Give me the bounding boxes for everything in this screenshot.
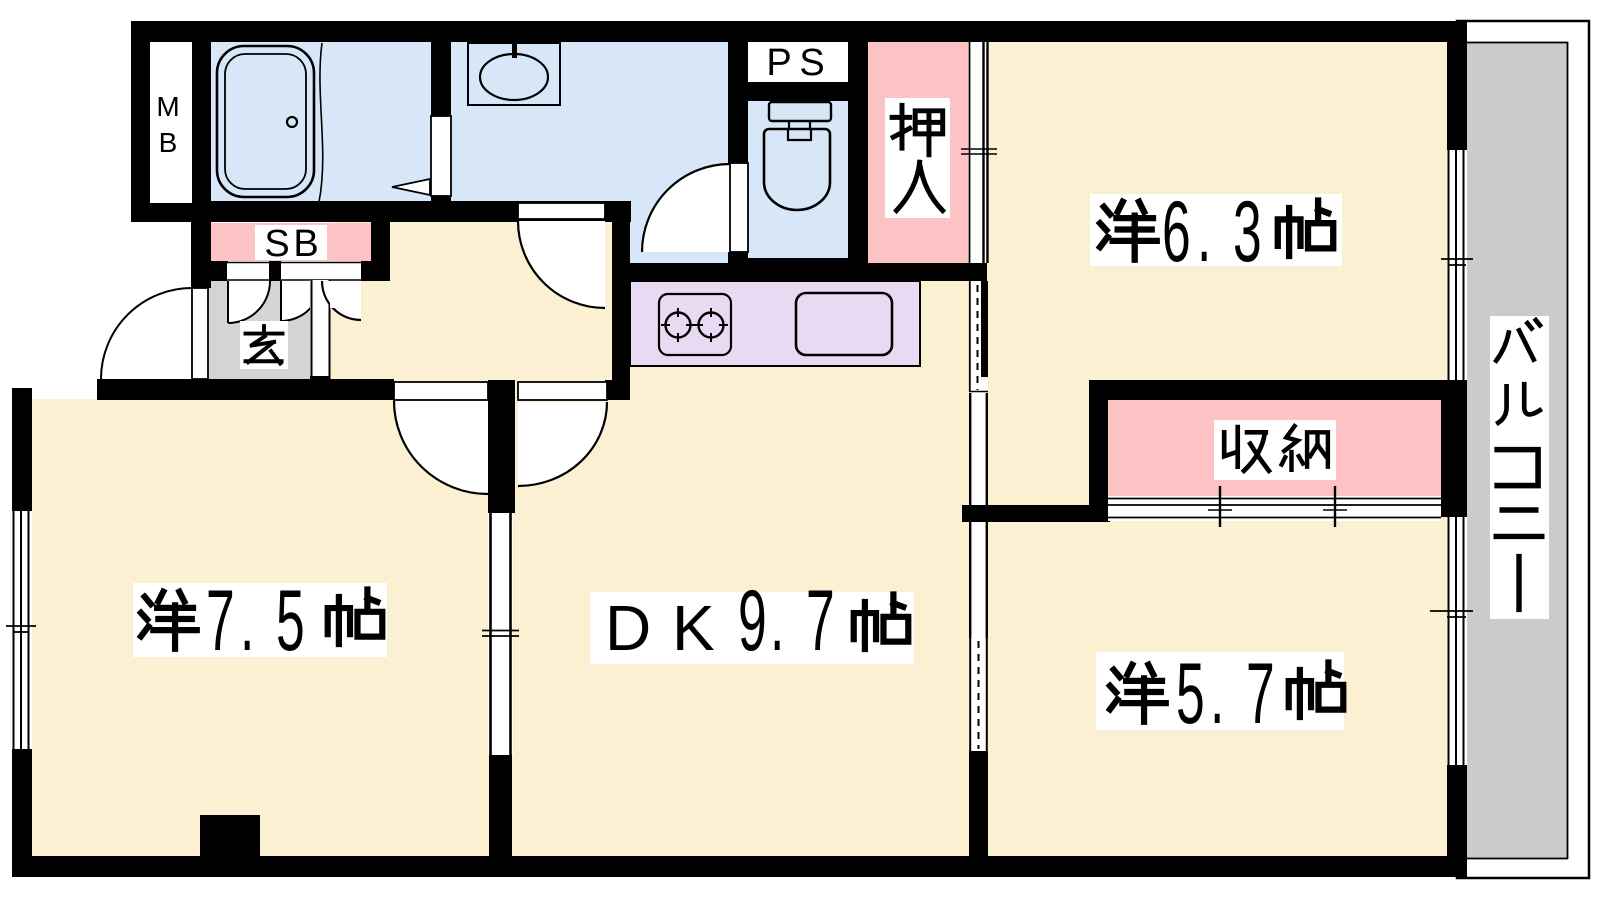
svg-text:D: D (605, 592, 651, 664)
svg-text:5: 5 (1176, 647, 1205, 743)
svg-text:7: 7 (206, 574, 235, 670)
svg-text:.: . (240, 574, 254, 670)
svg-text:7: 7 (1246, 647, 1275, 743)
svg-text:3: 3 (1233, 185, 1262, 281)
svg-text:5: 5 (276, 574, 305, 670)
svg-text:M: M (156, 91, 179, 122)
svg-text:.: . (1197, 185, 1211, 281)
svg-text:.: . (1210, 647, 1224, 743)
svg-text:B: B (293, 223, 318, 265)
svg-text:.: . (770, 574, 784, 670)
svg-text:7: 7 (806, 574, 835, 670)
svg-text:9: 9 (738, 574, 767, 670)
svg-text:K: K (672, 592, 715, 664)
svg-text:B: B (159, 127, 178, 158)
svg-text:6: 6 (1162, 185, 1191, 281)
svg-text:S: S (799, 42, 824, 84)
svg-text:S: S (264, 223, 289, 265)
svg-text:P: P (766, 42, 791, 84)
